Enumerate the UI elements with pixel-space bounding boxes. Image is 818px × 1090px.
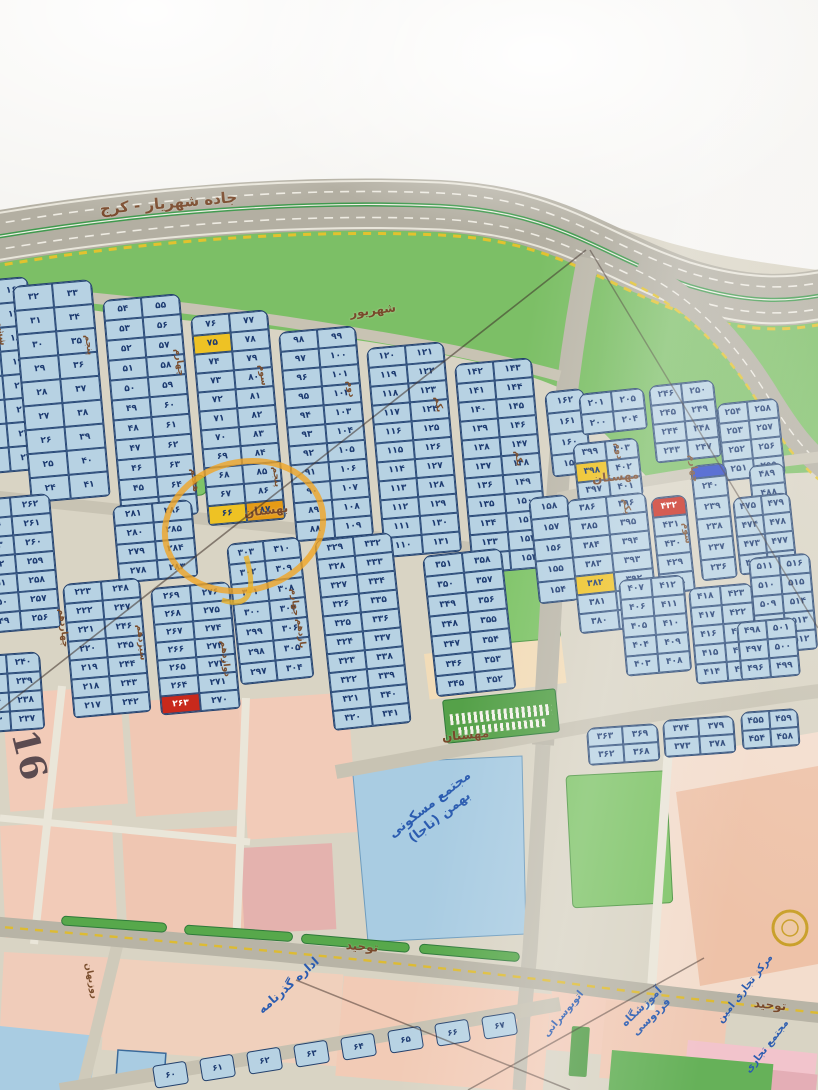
map-photo: ۸۱۶۷۱۷۶۱۸۵۱۹۴۲۰۳۲۱۲۲۲۱۲۳۳۲۳۳۳۱۳۴۳۰۳۵۲۹۳۶… xyxy=(0,0,818,1090)
water-area xyxy=(352,756,526,942)
map-base-svg xyxy=(0,0,818,1090)
